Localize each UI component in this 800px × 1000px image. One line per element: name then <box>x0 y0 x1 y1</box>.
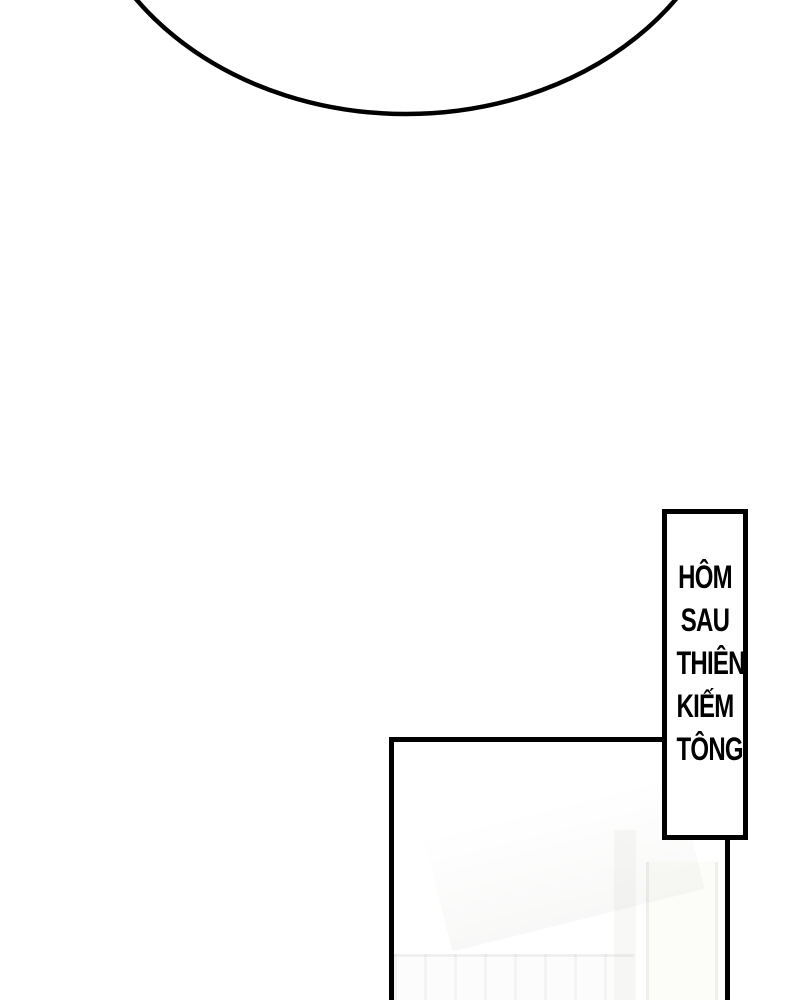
caption-box: HÔM SAU THIÊN KIẾM TÔNG <box>662 509 748 840</box>
caption-line-4: KIẾM <box>677 685 734 728</box>
comic-page: HÔM SAU THIÊN KIẾM TÔNG <box>0 0 800 1000</box>
panel-faint-art-railing <box>394 954 634 1000</box>
panel-faint-art-door-frame <box>646 862 718 1000</box>
caption-line-3: THIÊN <box>677 642 734 685</box>
speech-bubble-arc <box>0 0 800 140</box>
caption-line-2: SAU <box>677 599 734 642</box>
caption-line-1: HÔM <box>677 556 734 599</box>
caption-line-5: TÔNG <box>677 728 734 771</box>
